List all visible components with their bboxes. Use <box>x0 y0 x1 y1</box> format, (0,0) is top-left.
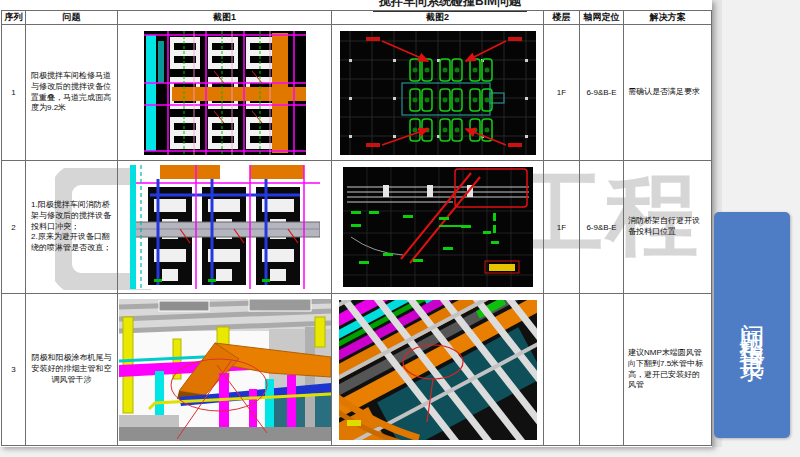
bim-3d-dark <box>339 300 537 440</box>
cell-grid-2: 6-9&B-E <box>580 161 624 294</box>
cell-shot2-3 <box>332 294 544 446</box>
issue-table: 序列 问题 截图1 截图2 楼层 轴网定位 解决方案 1 阳极搅拌车间检修马道与… <box>1 10 712 446</box>
app-background: { "page": { "title": "搅拌车间系统碰撞BIM问题", "s… <box>0 0 800 457</box>
cell-shot2-1 <box>332 25 544 161</box>
header-shot2: 截图2 <box>332 11 544 25</box>
table-row-2: 2 1.阳极搅拌车间消防桥架与修改后的搅拌设备投料口冲突； 2.原来为避开设备口… <box>2 161 712 294</box>
header-problem: 问题 <box>26 11 118 25</box>
cell-shot1-2 <box>118 161 332 294</box>
bim-3d-white-image <box>118 299 331 441</box>
cad-plan-dark2 <box>343 167 533 287</box>
document-page: 工程 搅拌车间系统碰撞BIM问题 序列 问题 截图1 截图2 楼层 轴网定位 解… <box>0 0 712 447</box>
cad-plan-dark <box>340 31 536 155</box>
cad-elevation-colored-image <box>118 165 331 289</box>
cad-plan-dark2-image <box>332 167 543 287</box>
cad-plan-dark-image <box>332 31 543 155</box>
table-row-3: 3 阴极和阳极涂布机尾与安装好的排烟主管和空调风管干涉 <box>2 294 712 446</box>
tab-problem-report-label: 问题报告记录 <box>740 304 765 346</box>
table-row-1: 1 阳极搅拌车间检修马道与修改后的搅拌设备位置重叠，马道完成面高度为9.2米 <box>2 25 712 161</box>
header-seq: 序列 <box>2 11 26 25</box>
bim-3d-white <box>119 299 331 441</box>
cell-solution-3: 建议NMP末端圆风管向下翻到7.5米管中标高，避开已安装好的风管 <box>624 294 712 446</box>
cell-seq-1: 1 <box>2 25 26 161</box>
header-solution: 解决方案 <box>624 11 712 25</box>
tab-problem-report-log[interactable]: 问题报告记录 <box>714 212 790 438</box>
cell-grid-3 <box>580 294 624 446</box>
cell-seq-3: 3 <box>2 294 26 446</box>
cell-solution-1: 需确认是否满足要求 <box>624 25 712 161</box>
cell-solution-2: 消防桥架自行避开设备投料口位置 <box>624 161 712 294</box>
header-shot1: 截图1 <box>118 11 332 25</box>
header-floor: 楼层 <box>544 11 580 25</box>
cell-problem-3: 阴极和阳极涂布机尾与安装好的排烟主管和空调风管干涉 <box>26 294 118 446</box>
cell-shot1-1 <box>118 25 332 161</box>
cell-shot1-3 <box>118 294 332 446</box>
header-grid: 轴网定位 <box>580 11 624 25</box>
bim-3d-dark-image <box>332 300 543 440</box>
table-header-row: 序列 问题 截图1 截图2 楼层 轴网定位 解决方案 <box>2 11 712 25</box>
cell-problem-1: 阳极搅拌车间检修马道与修改后的搅拌设备位置重叠，马道完成面高度为9.2米 <box>26 25 118 161</box>
cell-grid-1: 6-9&B-E <box>580 25 624 161</box>
cell-problem-2: 1.阳极搅拌车间消防桥架与修改后的搅拌设备投料口冲突； 2.原来为避开设备口翻绕… <box>26 161 118 294</box>
cell-seq-2: 2 <box>2 161 26 294</box>
cad-plan-colored-image <box>118 31 331 155</box>
cad-elevation-colored <box>130 165 320 289</box>
cell-floor-3 <box>544 294 580 446</box>
cell-shot2-2 <box>332 161 544 294</box>
cad-plan-colored <box>144 31 306 155</box>
cell-floor-2: 1F <box>544 161 580 294</box>
cell-floor-1: 1F <box>544 25 580 161</box>
